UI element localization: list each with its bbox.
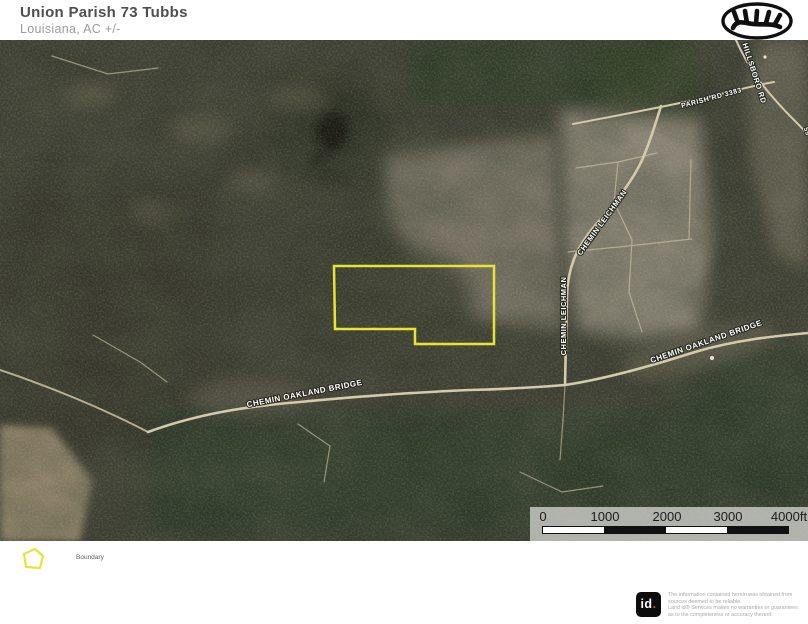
legend: Boundary — [0, 541, 808, 577]
scale-label-4000ft: 4000ft — [771, 509, 807, 524]
legend-item-boundary: Boundary — [76, 554, 104, 561]
road-label-chemin-leichman-lower: CHEMIN LEICHMAN — [559, 277, 568, 356]
scale-label-0: 0 — [539, 509, 546, 524]
land-id-logo: id. — [636, 592, 661, 617]
header: Union Parish 73 Tubbs Louisiana, AC +/- — [0, 0, 808, 40]
scale-bar: 0 1000 2000 3000 4000ft — [530, 507, 808, 541]
footer: id. The information contained herein was… — [0, 588, 808, 624]
aerial-map-canvas: CHEMIN OAKLAND BRIDGE CHEMIN OAKLAND BRI… — [0, 40, 808, 541]
disclaimer-text: The information contained herein was obt… — [668, 592, 808, 618]
terrain-texture — [0, 40, 808, 541]
boundary-swatch-icon — [20, 547, 47, 576]
scale-label-2000: 2000 — [653, 509, 682, 524]
page-title: Union Parish 73 Tubbs — [20, 4, 188, 21]
scale-label-3000: 3000 — [714, 509, 743, 524]
page-subtitle: Louisiana, AC +/- — [20, 22, 121, 36]
scale-label-1000: 1000 — [591, 509, 620, 524]
scale-track — [542, 526, 789, 534]
